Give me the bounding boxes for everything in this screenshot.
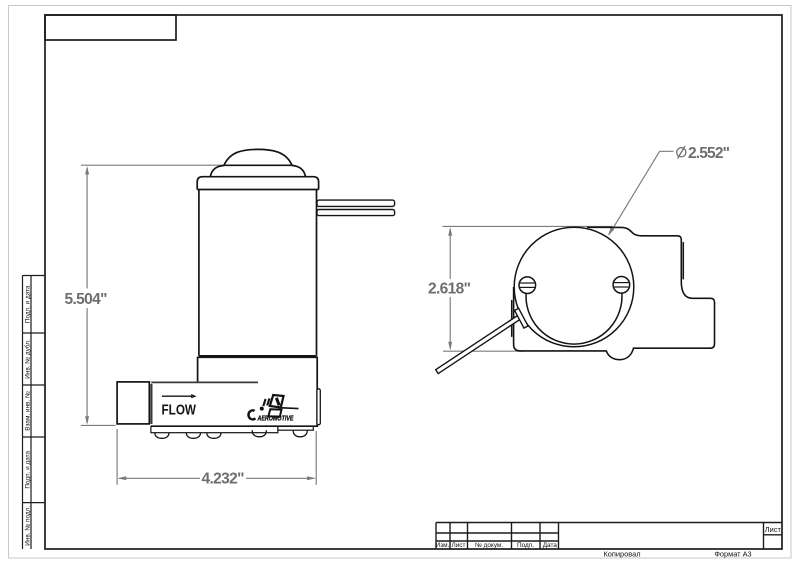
svg-text:Копировал: Копировал bbox=[603, 550, 640, 559]
svg-text:Подп.: Подп. bbox=[517, 542, 534, 549]
svg-text:Подп. и дата: Подп. и дата bbox=[24, 451, 31, 489]
svg-text:Дата: Дата bbox=[543, 542, 558, 549]
svg-text:Формат А3: Формат А3 bbox=[714, 550, 751, 559]
svg-text:Изм.: Изм. bbox=[436, 542, 450, 549]
svg-text:2.618": 2.618" bbox=[428, 281, 471, 298]
svg-text:FLOW: FLOW bbox=[162, 403, 197, 419]
svg-text:Взам. инв. №: Взам. инв. № bbox=[24, 391, 31, 431]
svg-text:Подп. и дата: Подп. и дата bbox=[24, 285, 31, 323]
svg-text:Лист: Лист bbox=[765, 525, 782, 534]
svg-text:AEROMOTIVE: AEROMOTIVE bbox=[257, 414, 294, 423]
svg-text:Инв. № подл.: Инв. № подл. bbox=[24, 506, 31, 546]
svg-text:Инв. № дубл.: Инв. № дубл. bbox=[23, 339, 31, 379]
svg-text:5.504": 5.504" bbox=[65, 291, 108, 308]
svg-text:№ докум.: № докум. bbox=[475, 542, 503, 549]
svg-text:4.232": 4.232" bbox=[202, 470, 245, 487]
svg-text:Лист: Лист bbox=[452, 542, 466, 549]
svg-text:2.552": 2.552" bbox=[688, 145, 730, 162]
